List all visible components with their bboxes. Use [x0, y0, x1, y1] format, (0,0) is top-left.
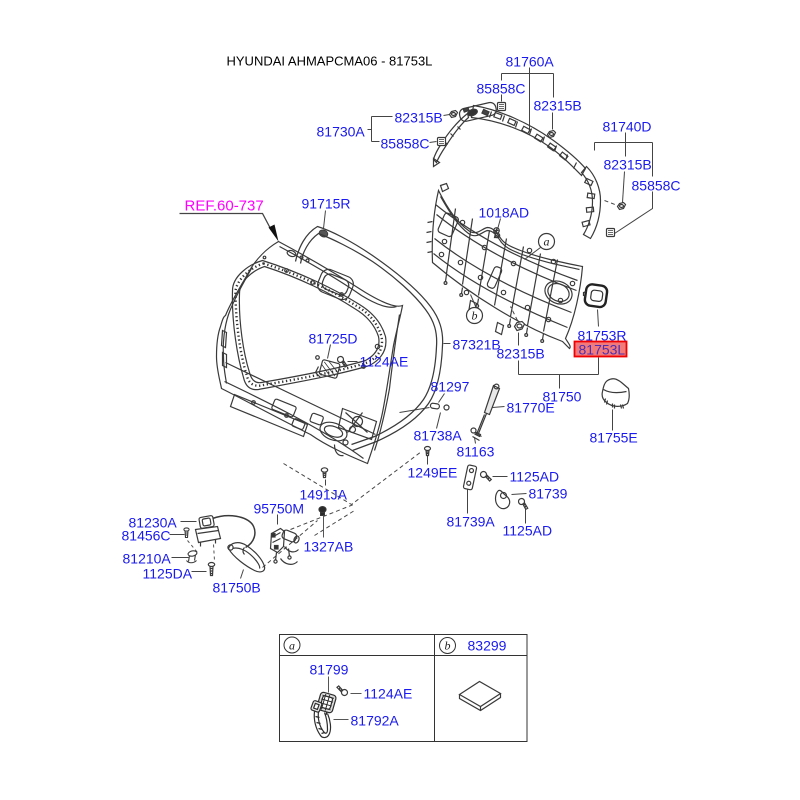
svg-text:a: a	[289, 639, 295, 653]
svg-text:1125AD: 1125AD	[503, 523, 553, 539]
svg-text:81738A: 81738A	[414, 428, 463, 444]
svg-text:81725D: 81725D	[309, 331, 358, 347]
svg-text:81740D: 81740D	[603, 119, 652, 135]
svg-text:1249EE: 1249EE	[408, 465, 458, 481]
svg-text:81770E: 81770E	[507, 400, 555, 416]
svg-text:81739: 81739	[529, 486, 568, 502]
svg-text:81750B: 81750B	[213, 580, 261, 596]
svg-text:1125DA: 1125DA	[143, 566, 193, 582]
svg-text:1124AE: 1124AE	[364, 686, 413, 702]
svg-text:a: a	[544, 235, 550, 249]
svg-text:91715R: 91715R	[302, 196, 351, 212]
svg-text:b: b	[472, 309, 478, 323]
svg-text:81755E: 81755E	[590, 430, 638, 446]
svg-text:81753L: 81753L	[579, 342, 626, 358]
svg-text:b: b	[445, 639, 451, 653]
svg-text:1125AD: 1125AD	[510, 469, 560, 485]
svg-text:81210A: 81210A	[123, 551, 172, 567]
svg-text:81799: 81799	[310, 662, 349, 678]
svg-text:81456C: 81456C	[122, 528, 171, 544]
svg-text:HYUNDAI AHMAPCMA06 - 81753L: HYUNDAI AHMAPCMA06 - 81753L	[227, 54, 433, 69]
svg-text:81163: 81163	[457, 444, 495, 460]
svg-text:81760A: 81760A	[506, 54, 555, 70]
svg-text:82315B: 82315B	[395, 110, 443, 126]
svg-text:81730A: 81730A	[317, 124, 366, 140]
svg-text:82315B: 82315B	[604, 157, 652, 173]
svg-text:81739A: 81739A	[447, 514, 496, 530]
svg-text:1124AE: 1124AE	[360, 354, 409, 370]
svg-text:87321B: 87321B	[453, 337, 501, 353]
svg-text:82315B: 82315B	[497, 346, 545, 362]
svg-text:1491JA: 1491JA	[300, 487, 348, 503]
svg-text:95750M: 95750M	[254, 501, 305, 517]
svg-text:REF.60-737: REF.60-737	[185, 198, 264, 215]
svg-text:1018AD: 1018AD	[479, 205, 530, 221]
svg-text:85858C: 85858C	[632, 178, 681, 194]
svg-text:81792A: 81792A	[351, 713, 400, 729]
svg-text:82315B: 82315B	[534, 98, 582, 114]
svg-text:85858C: 85858C	[381, 136, 430, 152]
svg-text:81297: 81297	[431, 379, 470, 395]
svg-text:83299: 83299	[468, 638, 507, 654]
svg-text:85858C: 85858C	[477, 81, 526, 97]
svg-text:1327AB: 1327AB	[304, 539, 354, 555]
